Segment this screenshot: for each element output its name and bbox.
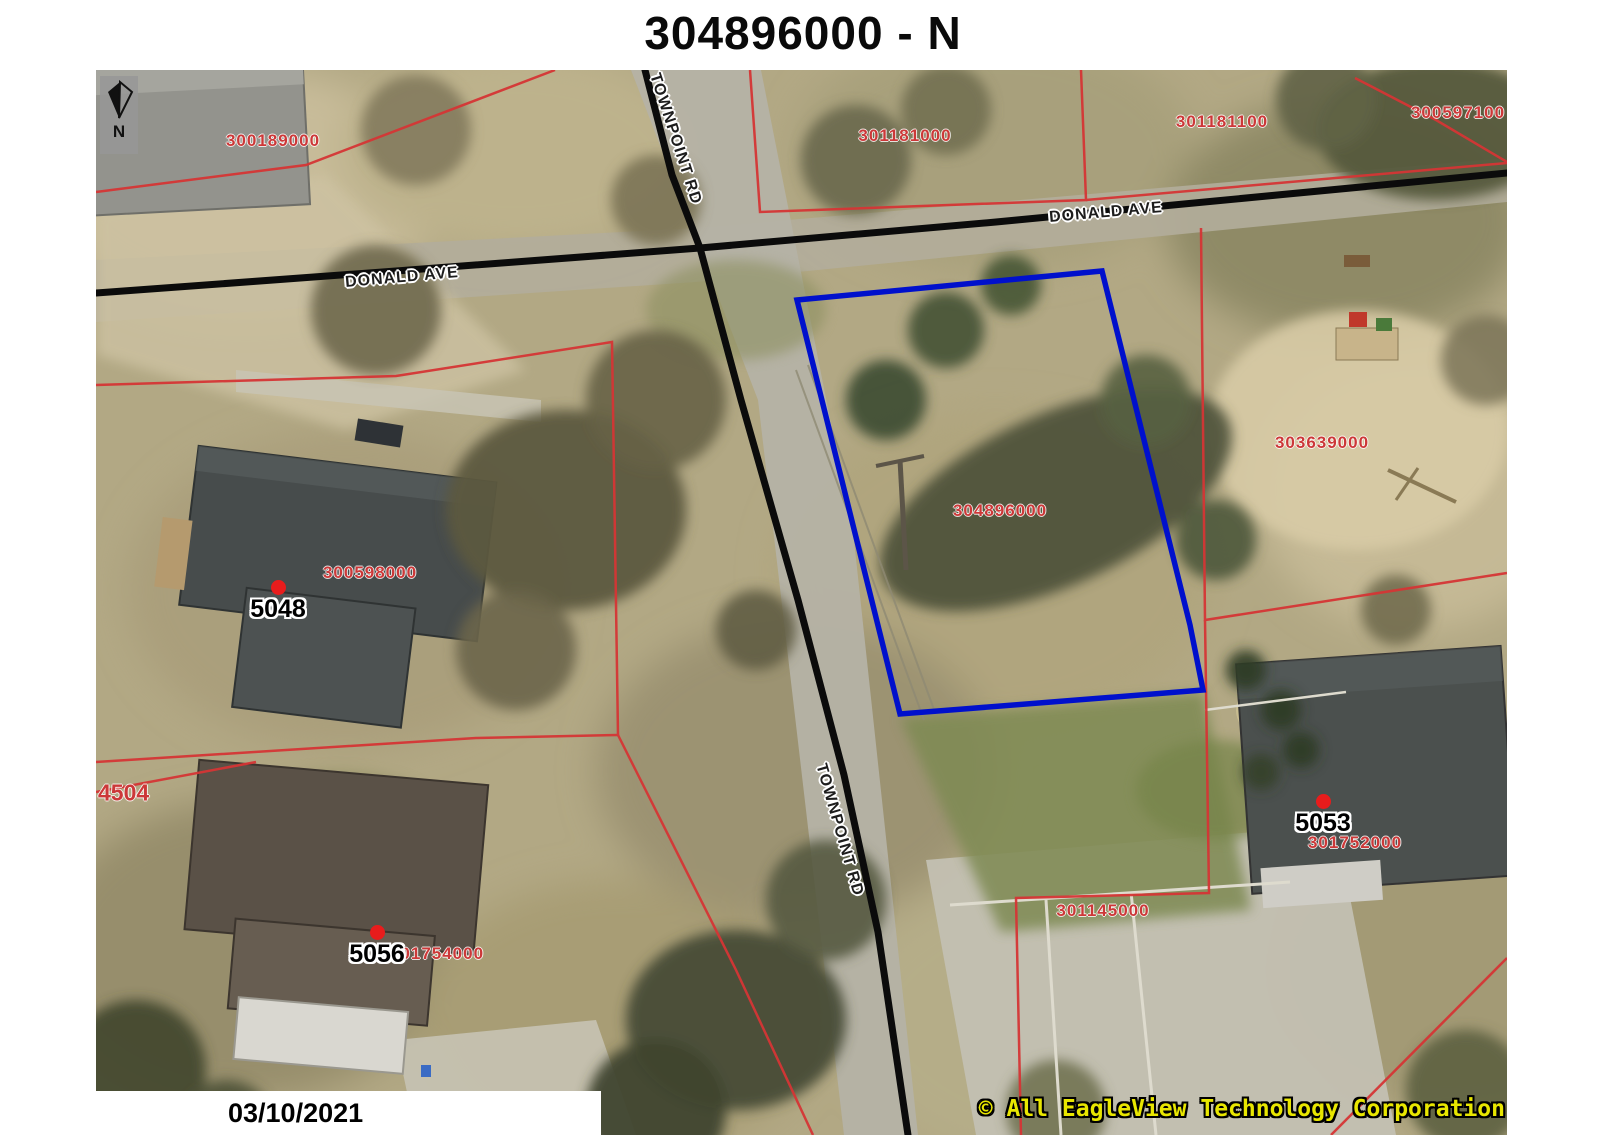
address-marker-5056: 5056 [332,925,422,969]
date-stamp: 03/10/2021 [96,1091,601,1135]
parcel-label-303639000: 303639000 [1275,433,1369,453]
copyright-notice: © All EagleView Technology Corporation [979,1096,1505,1122]
address-number: 5048 [250,595,306,624]
parcel-label-301181100: 301181100 [1176,112,1268,132]
parcel-label-300598000: 300598000 [323,563,417,583]
report-page: 304896000 - N [0,0,1606,1135]
address-number: 5056 [349,940,405,969]
page-title: 304896000 - N [0,6,1606,60]
address-number: 5053 [1295,809,1351,838]
address-marker-5048: 5048 [233,580,323,624]
parcel-label-300189000: 300189000 [226,131,320,151]
north-arrow: N [100,76,138,154]
parcel-label-301145000: 301145000 [1056,901,1149,921]
north-arrow-icon [102,80,136,120]
address-dot [271,580,286,595]
north-label: N [113,122,125,142]
address-dot [370,925,385,940]
address-dot [1316,794,1331,809]
parcel-label-304896000: 304896000 [953,501,1047,521]
parcel-label-4504: 4504 [98,780,149,807]
address-marker-5053: 5053 [1278,794,1368,838]
parcel-label-301181000: 301181000 [858,126,951,146]
parcel-label-300597100: 300597100 [1411,103,1505,123]
date-text: 03/10/2021 [228,1098,363,1129]
aerial-map: N DONALD AVE DONALD AVE TOWNPOINT RD TOW… [96,70,1507,1135]
